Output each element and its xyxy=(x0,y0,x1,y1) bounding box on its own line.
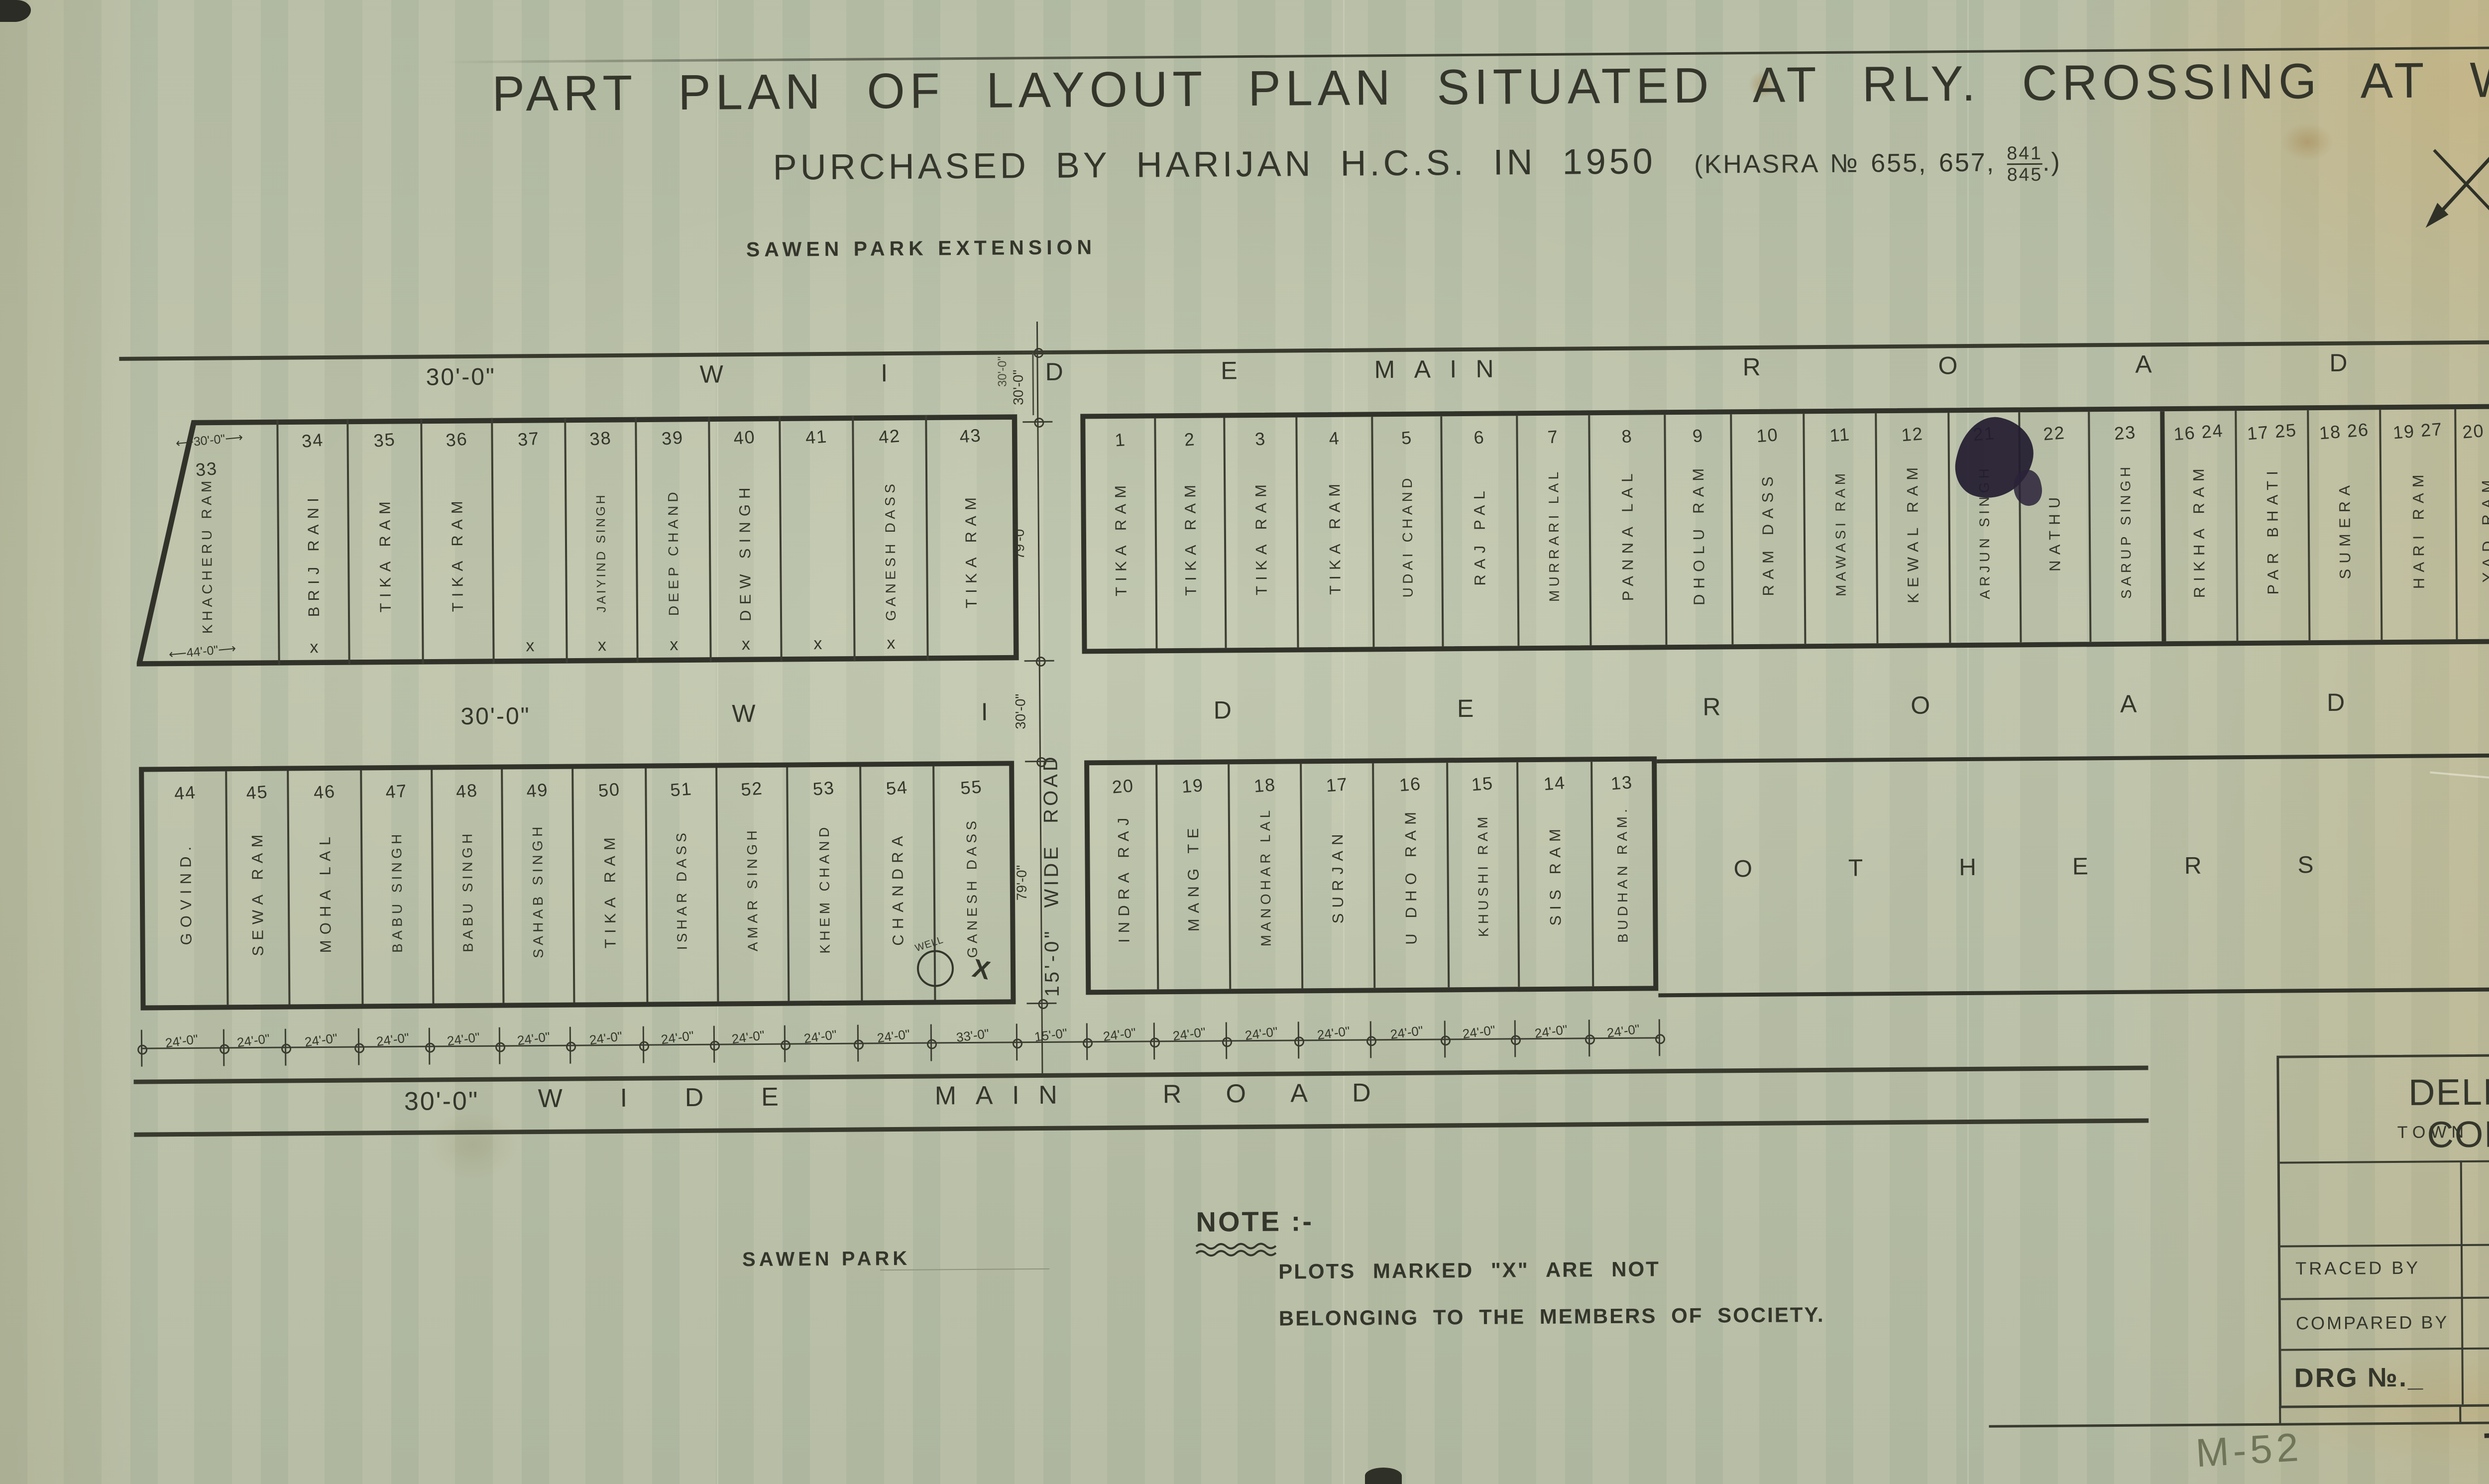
plot-cell-5: 5UDAI CHAND xyxy=(1372,416,1443,647)
road-label-letter: E xyxy=(761,1082,779,1112)
road-label-letter: A xyxy=(1414,354,1431,383)
dimension-tick-circle xyxy=(1655,1034,1665,1044)
plot-cell-49: 49SAHAB SINGH xyxy=(502,769,574,1003)
bottom-road-top-line xyxy=(134,1065,2149,1084)
sawen-park-label: SAWEN PARK xyxy=(742,1248,910,1271)
plot-number: 52 xyxy=(716,776,788,802)
plot-owner-name: TIKA RAM xyxy=(1112,480,1131,596)
road-label-letter: O xyxy=(1911,691,1930,720)
road-label-word: WIDE xyxy=(732,694,1473,728)
road-label-letter: W xyxy=(732,699,756,728)
title-block-org: DELHI MUNCIPAL CORPORATION. xyxy=(2279,1068,2489,1156)
road-label-letter: O xyxy=(1938,351,1957,380)
plot-x-mark: x xyxy=(637,635,710,655)
plot-cell-16: 16U DHO RAM xyxy=(1373,763,1449,988)
road-label-letter: A xyxy=(2135,349,2152,378)
plot-cell-45: 45SEWA RAM xyxy=(226,771,289,1005)
footer-ref-m52: M-52 xyxy=(2194,1424,2303,1477)
plot-cell-20 28: 20 28YAD RAM xyxy=(2455,409,2489,639)
road-label-letter: D xyxy=(1352,1078,1371,1108)
plot-number: 54 xyxy=(860,775,934,801)
road-label-letter: H xyxy=(1959,854,1976,881)
plot-number: 16 24 xyxy=(2160,419,2237,446)
road-label-letter: I xyxy=(881,358,888,387)
plot-number: 13 xyxy=(1591,770,1653,796)
plot-x-mark: x xyxy=(279,638,349,658)
road-label-letter: D xyxy=(2327,688,2345,717)
plot-number: 37 xyxy=(491,426,566,453)
dimension-tick-circle xyxy=(566,1042,576,1052)
drawing-subtitle: PURCHASED BY HARIJAN H.C.S. IN 1950 (KHA… xyxy=(773,138,2047,193)
plot-block-33-43: 33KHACHERU RAM⟵30'-0"⟶⟵44'-0"⟶34BRIJ RAN… xyxy=(135,414,1018,666)
sheet-border-bottom xyxy=(1989,1419,2489,1427)
plot-owner-name: CHANDRA xyxy=(889,830,907,946)
plot-x-mark: x xyxy=(781,634,854,654)
plot-owner-name: SIS RAM xyxy=(1546,823,1564,925)
plot-cell-41: 41x xyxy=(780,416,854,662)
dimension-tick-circle xyxy=(1585,1034,1595,1044)
vertical-dimension-value: 79'-0" xyxy=(1014,855,1030,910)
plot-x-mark: x xyxy=(710,635,781,655)
plot-block-1-31: 1TIKA RAM2TIKA RAM3TIKA RAM4TIKA RAM5UDA… xyxy=(1080,402,2489,654)
plot-cell-12: 12KEWAL RAM xyxy=(1876,413,1950,643)
title-block-foot-tick xyxy=(2459,1406,2461,1423)
plot-number: 45 xyxy=(226,780,289,805)
plot-cell-34: 34BRIJ RANIx xyxy=(277,419,349,666)
road-label-word: ROAD xyxy=(1702,688,2345,721)
plot-cell-39: 39DEEP CHANDx xyxy=(636,417,710,663)
dimension-tick-circle xyxy=(1511,1035,1521,1045)
plot-number: 47 xyxy=(360,779,433,805)
plot-number: 36 xyxy=(421,427,493,453)
plot-cell-16 24: 16 24RIKHA RAM xyxy=(2161,411,2237,641)
plot-cell-17 25: 17 25PAR BHATI xyxy=(2236,410,2309,641)
plot-cell-51: 51ISHAR DASS xyxy=(646,768,718,1002)
plot-number: 10 xyxy=(1730,422,1805,449)
plot-owner-name: BABU SINGH xyxy=(459,830,476,952)
plot-owner-name: TIKA RAM xyxy=(601,832,620,948)
plot-owner-name: TIKA RAM xyxy=(1181,479,1200,596)
plot-owner-name: DEEP CHAND xyxy=(665,488,682,616)
plot-block-44-55: 44GOVIND.45SEWA RAM46MOHA LAL47BABU SING… xyxy=(139,761,1016,1010)
plot-cell-1: 1TIKA RAM xyxy=(1085,418,1156,649)
road-label-letter: I xyxy=(1012,1080,1019,1110)
plot-number: 49 xyxy=(501,778,573,804)
road-label-letter: R xyxy=(2184,852,2202,880)
plot-number: 18 26 xyxy=(2307,418,2381,445)
plot-number: 41 xyxy=(779,424,854,451)
plot-cell-55: 55GANESH DASSWELLX xyxy=(933,766,1011,1000)
plot-owner-name: KHUSHI RAM xyxy=(1474,813,1491,937)
plot-number: 20 xyxy=(1089,774,1157,799)
plot-number: 44 xyxy=(143,780,227,807)
plot-owner-name: TIKA RAM xyxy=(962,492,981,608)
plot-cell-18: 18MANOHAR LAL xyxy=(1229,764,1302,989)
sawen-park-extension-label: SAWEN PARK EXTENSION xyxy=(746,235,1097,261)
plot-cell-42: 42GANESH DASSx xyxy=(853,415,927,662)
plot-number: 20 28 xyxy=(2455,418,2489,444)
plot-cell-19 27: 19 27HARI RAM xyxy=(2380,409,2457,640)
plot-owner-name: ISHAR DASS xyxy=(674,829,690,950)
subtitle-text: PURCHASED BY HARIJAN H.C.S. IN 1950 xyxy=(773,141,1656,187)
plot-owner-name: GANESH DASS xyxy=(964,817,981,958)
plot-x-mark: x xyxy=(566,636,637,656)
plot-owner-name: JAIYIND SINGH xyxy=(594,492,609,612)
plot-number: 42 xyxy=(852,424,927,450)
dimension-tick-circle xyxy=(425,1042,435,1052)
well-symbol xyxy=(917,950,954,987)
dimension-tick-circle xyxy=(220,1044,229,1054)
plot-cell-52: 52AMAR SINGH xyxy=(716,768,789,1002)
plot-owner-name: SURJAN xyxy=(1329,828,1347,923)
plot-owner-name: INDRA RAJ xyxy=(1114,812,1133,943)
plot-number: 48 xyxy=(431,778,503,804)
plot-x-mark: x xyxy=(493,636,566,656)
plot-cell-11: 11MAWASI RAM xyxy=(1804,413,1877,644)
dimension-tick-circle xyxy=(1441,1035,1451,1045)
plot-cell-10: 10RAM DASS xyxy=(1731,414,1805,644)
plot-owner-name: RAM DASS xyxy=(1759,471,1778,596)
plot-cell-2: 2TIKA RAM xyxy=(1155,418,1226,648)
plot-number: 5 xyxy=(1371,425,1442,452)
north-arrow-icon xyxy=(2408,90,2489,240)
dimension-tick-circle xyxy=(1038,999,1048,1009)
road-label-letter: S xyxy=(2297,851,2313,879)
plot-owner-name: U DHO RAM xyxy=(1401,806,1420,944)
dimension-tick-circle xyxy=(1366,1036,1376,1046)
plot-number: 17 25 xyxy=(2235,419,2309,445)
plot-owner-name: MANOHAR LAL xyxy=(1257,806,1274,946)
plot-owner-name: TIKA RAM xyxy=(1252,479,1271,595)
plot-owner-name: DEW SINGH xyxy=(736,482,755,621)
dimension-tick-circle xyxy=(281,1044,291,1054)
road-label-letter: T xyxy=(1848,854,1863,882)
plot-cell-20: 20INDRA RAJ xyxy=(1089,765,1158,990)
title-block-divider xyxy=(2460,1160,2464,1404)
plot-cell-6: 6RAJ PAL xyxy=(1441,416,1518,646)
bottom-road-bottom-line xyxy=(134,1118,2149,1137)
title-block-section: TOWN PLANNING SECTION xyxy=(2279,1120,2489,1143)
plot-owner-name: BABU SINGH xyxy=(389,830,406,953)
drawing-content: PART PLAN OF LAYOUT PLAN SITUATED AT RLY… xyxy=(0,0,2489,1484)
road-label-letter: M xyxy=(935,1081,957,1111)
plot-number: 16 xyxy=(1372,771,1448,798)
plot-number: 55 xyxy=(933,774,1010,801)
plot-number: 38 xyxy=(565,426,637,452)
title-block-foot-tick xyxy=(2279,1407,2281,1424)
plot-number: 2 xyxy=(1154,427,1225,453)
road-label-letter: E xyxy=(2072,853,2088,880)
road-label-word: WIDE xyxy=(538,1082,779,1114)
dimension-tick-circle xyxy=(1150,1037,1160,1047)
plot-owner-name: UDAI CHAND xyxy=(1399,474,1416,597)
plot-number: 14 xyxy=(1517,770,1592,797)
plot-owner-name: SEWA RAM xyxy=(248,829,267,956)
plot-number: 3 xyxy=(1224,426,1297,452)
title-block-rule xyxy=(2280,1157,2489,1163)
road-label-letter: E xyxy=(1457,694,1474,723)
plot-owner-name: SARUP SINGH xyxy=(2117,463,2134,599)
plot-number: 50 xyxy=(572,777,647,803)
plot-number: 1 xyxy=(1085,427,1156,454)
dimension-tick-circle xyxy=(710,1041,720,1051)
khasra-fraction: 841845 xyxy=(2007,143,2042,184)
plot-cell-35: 35TIKA RAM xyxy=(347,419,423,665)
road-label-letter: R xyxy=(1742,352,1761,381)
road-label-letter: N xyxy=(1475,354,1494,383)
plot-number: 9 xyxy=(1664,423,1732,449)
road-label-letter: E xyxy=(1221,356,1238,385)
plot-cell-36: 36TIKA RAM xyxy=(421,418,493,665)
plot-x-mark: x xyxy=(854,634,927,654)
khasra-prefix: (KHASRA № 655, 657, xyxy=(1694,148,1995,179)
road-label-letter: R xyxy=(1163,1079,1182,1109)
plot-cell-44: 44GOVIND. xyxy=(144,771,227,1005)
road-label-word: MAIN xyxy=(935,1080,1057,1111)
plot-cell-37: 37x xyxy=(492,418,566,664)
plot-owner-name: YAD RAM xyxy=(2479,474,2489,582)
plot-number: 8 xyxy=(1588,423,1666,450)
road-label-letter: D xyxy=(1214,695,1232,724)
road-label-letter: I xyxy=(620,1083,627,1113)
plot-number: 23 xyxy=(2088,420,2162,446)
road-label-letter: O xyxy=(1733,855,1752,883)
road-label-letter: A xyxy=(2120,689,2137,718)
khasra-numerator: 841 xyxy=(2007,143,2042,163)
plot-owner-name: MOHA LAL xyxy=(316,831,335,953)
traced-by-label: TRACED BY xyxy=(2295,1257,2420,1279)
plot-cell-7: 7MURRARI LAL xyxy=(1517,415,1590,646)
road-label-letter: O xyxy=(1226,1079,1246,1109)
plot-owner-name: KHEM CHAND xyxy=(816,823,833,953)
road-label-letter: W xyxy=(699,359,723,388)
plot-divider xyxy=(2160,411,2166,641)
title-block: DELHI MUNCIPAL CORPORATION. TOWN PLANNIN… xyxy=(2276,1051,2489,1408)
plot-owner-name: PAR BHATI xyxy=(2263,465,2282,595)
plot-number: 40 xyxy=(708,425,781,451)
road-label-letter: D xyxy=(685,1083,704,1113)
plot-number: 51 xyxy=(645,777,717,803)
plot-top-dimension: ⟵30'-0"⟶ xyxy=(175,430,243,451)
plot-owner-name: NATHU xyxy=(2045,492,2064,572)
title-block-rule xyxy=(2280,1241,2489,1247)
plot-x-mark: X xyxy=(970,953,993,986)
plot-cell-53: 53KHEM CHAND xyxy=(787,767,862,1001)
plot-cell-17: 17SURJAN xyxy=(1301,763,1374,988)
dimension-tick-circle xyxy=(137,1045,147,1055)
dimension-tick-circle xyxy=(1222,1037,1232,1047)
plot-cell-43: 43TIKA RAM xyxy=(926,414,1016,661)
drawing-sheet: PART PLAN OF LAYOUT PLAN SITUATED AT RLY… xyxy=(0,0,2489,1484)
dimension-tick-circle xyxy=(1294,1036,1304,1046)
plot-owner-name: MURRARI LAL xyxy=(1545,468,1562,602)
road-label-letter: W xyxy=(538,1084,563,1114)
road-label-letter: D xyxy=(2329,348,2348,377)
plot-cell-14: 14SIS RAM xyxy=(1517,762,1593,987)
plot-owner-name: BUDHAN RAM. xyxy=(1614,805,1631,942)
khasra-note: (KHASRA № 655, 657, 841845.) xyxy=(1683,148,2061,179)
plot-owner-name: TIKA RAM xyxy=(448,495,467,612)
dimension-tick-circle xyxy=(1036,657,1046,667)
dimension-tick-circle xyxy=(927,1039,937,1049)
note-line-1: PLOTS MARKED "X" ARE NOT xyxy=(1278,1257,1660,1283)
road-label-word: OTHERS xyxy=(1733,851,2313,883)
dimension-tick-circle xyxy=(1036,757,1046,767)
title-block-rule xyxy=(2281,1345,2489,1351)
plot-cell-18 26: 18 26SUMERA xyxy=(2308,410,2381,640)
plot-cell-38: 38JAIYIND SINGHx xyxy=(565,417,637,664)
bottom-road-width-dim: 30'-0" xyxy=(404,1086,479,1117)
plot-owner-name: RIKHA RAM xyxy=(2190,463,2209,598)
top-road-width-dim: 30'-0" xyxy=(426,363,496,391)
plot-cell-19: 19MANG TE xyxy=(1156,764,1230,989)
compared-by-label: COMPARED BY xyxy=(2296,1312,2449,1334)
plot-cell-50: 50TIKA RAM xyxy=(572,769,647,1003)
road-label-word: WIDE xyxy=(699,356,1237,389)
dimension-tick-circle xyxy=(854,1039,864,1049)
traced-by-signature xyxy=(2480,1246,2489,1279)
note-line-2: BELONGING TO THE MEMBERS OF SOCIETY. xyxy=(1279,1303,1825,1331)
plot-cell-33: 33KHACHERU RAM⟵30'-0"⟶⟵44'-0"⟶ xyxy=(135,420,279,667)
dimension-tick-circle xyxy=(354,1043,364,1053)
plot-number: 19 xyxy=(1156,773,1230,799)
dimension-tick-circle xyxy=(1013,1038,1022,1048)
road-label-letter: I xyxy=(981,697,988,726)
plot-number: 12 xyxy=(1875,421,1949,448)
road-label-word: ROAD xyxy=(1163,1078,1371,1109)
khasra-suffix: .) xyxy=(2042,148,2061,177)
drawing-title: PART PLAN OF LAYOUT PLAN SITUATED AT RLY… xyxy=(492,53,2287,122)
plot-number: 46 xyxy=(287,779,362,805)
plot-number: 39 xyxy=(635,425,710,452)
plot-cell-4: 4TIKA RAM xyxy=(1296,417,1373,647)
plot-owner-name: PANNA LAL xyxy=(1618,468,1637,601)
plot-owner-name: GOVIND. xyxy=(177,841,195,945)
road-label-letter: R xyxy=(1702,692,1721,721)
plot-number: 6 xyxy=(1441,424,1518,451)
plot-cell-23: 23SARUP SINGH xyxy=(2089,411,2162,642)
plot-number: 18 xyxy=(1228,772,1302,799)
road-label-word: MAIN xyxy=(1374,354,1493,384)
plot-number: 43 xyxy=(925,422,1016,450)
road-label-letter: A xyxy=(1290,1078,1308,1108)
dimension-tick-circle xyxy=(1034,418,1044,428)
road-label-letter: M xyxy=(1374,355,1395,384)
plot-owner-name: TIKA RAM xyxy=(376,496,395,612)
plot-cell-15: 15KHUSHI RAM xyxy=(1447,762,1519,987)
plot-number: 34 xyxy=(277,428,348,454)
plot-number: 19 27 xyxy=(2379,418,2456,444)
plot-owner-name: DHOLU RAM xyxy=(1689,463,1708,606)
plot-number: 4 xyxy=(1296,425,1373,452)
plot-owner-name: AMAR SINGH xyxy=(744,827,761,951)
plot-cell-9: 9DHOLU RAM xyxy=(1665,414,1732,645)
road-label-letter: A xyxy=(976,1081,993,1111)
dimension-tick-circle xyxy=(781,1040,791,1050)
plot-cell-3: 3TIKA RAM xyxy=(1224,417,1298,648)
note-underline xyxy=(1195,1242,1294,1259)
plot-owner-name: BRIJ RANI xyxy=(304,492,323,617)
plot-cell-8: 8PANNA LAL xyxy=(1589,415,1666,645)
khasra-denominator: 845 xyxy=(2007,165,2043,185)
plot-owner-name: RAJ PAL xyxy=(1471,485,1489,586)
plot-cell-48: 48BABU SINGH xyxy=(432,770,503,1004)
dimension-tick-circle xyxy=(1083,1038,1093,1048)
plot-owner-name: KEWAL RAM xyxy=(1904,462,1923,603)
dimension-tick-circle xyxy=(495,1042,505,1052)
plot-cell-13: 13BUDHAN RAM. xyxy=(1591,761,1653,986)
dimension-tick-circle xyxy=(639,1041,649,1051)
title-block-rule xyxy=(2281,1294,2489,1300)
plot-number: 11 xyxy=(1803,422,1877,448)
road-label-letter: N xyxy=(1038,1080,1057,1110)
plot-cell-46: 46MOHA LAL xyxy=(288,771,362,1005)
plot-number: 17 xyxy=(1300,772,1374,798)
plot-number: 7 xyxy=(1516,424,1590,450)
drg-no-label: DRG №._ xyxy=(2294,1362,2425,1394)
plot-number: 15 xyxy=(1447,771,1518,797)
plot-number: 35 xyxy=(347,427,422,454)
plot-bottom-dimension: ⟵44'-0"⟶ xyxy=(168,641,236,662)
dimension-tick-circle xyxy=(1033,348,1043,358)
plot-block-13-20: 20INDRA RAJ19MANG TE18MANOHAR LAL17SURJA… xyxy=(1084,756,1658,995)
note-heading: NOTE :- xyxy=(1196,1205,1314,1238)
plot-owner-name: KHACHERU RAM xyxy=(199,477,216,634)
road-label-word: ROAD xyxy=(1742,348,2347,381)
plot-cell-40: 40DEW SINGHx xyxy=(709,416,781,663)
vertical-dimension-value: 79'-0" xyxy=(1012,514,1028,569)
middle-road-width-dim: 30'-0" xyxy=(460,702,531,730)
plot-cell-47: 47BABU SINGH xyxy=(361,770,433,1004)
plot-owner-name: HARI RAM xyxy=(2409,469,2428,589)
plot-owner-name: GANESH DASS xyxy=(882,480,899,621)
plot-number: 53 xyxy=(787,775,861,801)
road-label-letter: I xyxy=(1450,354,1457,383)
road-label-letter: D xyxy=(1045,357,1063,386)
plot-owner-name: MAWASI RAM xyxy=(1832,470,1849,596)
plot-owner-name: SUMERA xyxy=(2336,480,2354,579)
plot-owner-name: TIKA RAM xyxy=(1326,478,1345,595)
plot-owner-name: MANG TE xyxy=(1184,822,1203,931)
plot-owner-name: SAHAB SINGH xyxy=(530,823,547,958)
